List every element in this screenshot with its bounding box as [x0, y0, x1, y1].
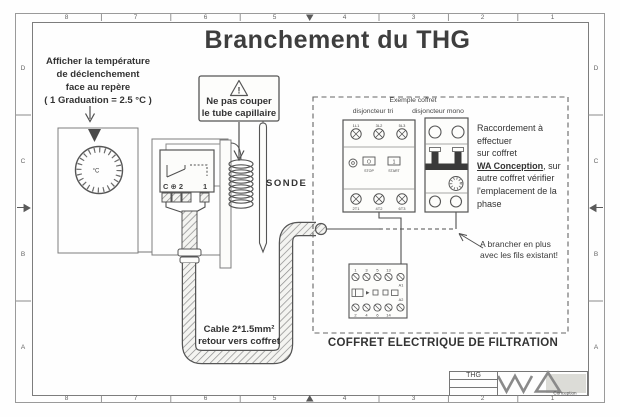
sonde-label: SONDE — [266, 178, 307, 189]
raccord-line: sur coffret — [477, 147, 573, 160]
raccord-line: autre coffret vérifier — [477, 172, 573, 185]
zone-col-bottom: 5 — [240, 394, 309, 403]
brancher-line: A brancher en plus — [480, 239, 588, 250]
zone-col-top: 1 — [518, 13, 587, 22]
zone-row-right: B — [588, 208, 604, 301]
raccord-line: l'emplacement de la — [477, 185, 573, 198]
zone-row-left: A — [15, 301, 31, 394]
brand-name: WA Conception — [477, 161, 543, 171]
zone-col-bottom: 4 — [310, 394, 379, 403]
cable-note: Cable 2*1.5mm² retour vers coffret — [193, 324, 285, 348]
zone-col-top: 2 — [448, 13, 517, 22]
zone-col-top: 8 — [32, 13, 101, 22]
cable-note-line: retour vers coffret — [193, 336, 285, 348]
title-block-table: THG — [450, 372, 498, 395]
warning-line: Ne pas couper — [200, 96, 278, 108]
zone-col-top: 3 — [379, 13, 448, 22]
zone-col-top: 6 — [171, 13, 240, 22]
page-title: Branchement du THG — [150, 26, 525, 55]
zone-col-top: 7 — [101, 13, 170, 22]
capillary-warning-note: Ne pas couper le tube capillaire — [200, 96, 278, 119]
zone-col-bottom: 8 — [32, 394, 101, 403]
drawing-code: THG — [450, 372, 497, 380]
raccord-line: effectuer — [477, 135, 573, 148]
zone-row-right: A — [588, 301, 604, 394]
title-block: THG — [449, 371, 588, 396]
zone-col-bottom: 3 — [379, 394, 448, 403]
raccord-line: WA Conception, sur — [477, 160, 573, 173]
zone-row-left: B — [15, 208, 31, 301]
breaker-tri-label: disjoncteur tri — [341, 108, 405, 115]
cable-note-line: Cable 2*1.5mm² — [193, 324, 285, 336]
title-block-empty-row — [450, 388, 497, 395]
brancher-annotation: A brancher en plus avec les fils existan… — [480, 239, 588, 261]
warning-line: le tube capillaire — [200, 108, 278, 120]
note-line: de déclenchement — [24, 68, 172, 81]
raccord-line: Raccordement à — [477, 122, 573, 135]
raccord-line-rest: , sur — [543, 161, 561, 171]
zone-col-bottom: 6 — [171, 394, 240, 403]
raccordement-note: Raccordement à effectuer sur coffret WA … — [477, 122, 573, 210]
raccord-line: phase — [477, 198, 573, 211]
note-line: face au repère — [24, 81, 172, 94]
zone-row-left: C — [15, 115, 31, 208]
zone-col-top: 5 — [240, 13, 309, 22]
brancher-line: avec les fils existant! — [480, 250, 588, 261]
zone-col-bottom: 7 — [101, 394, 170, 403]
breaker-mono-label: disjoncteur mono — [405, 108, 471, 115]
zone-row-right: C — [588, 115, 604, 208]
note-line: ( 1 Graduation = 2.5 °C ) — [24, 94, 172, 107]
title-block-logo-cell — [498, 372, 587, 395]
display-instruction-note: Afficher la température de déclenchement… — [24, 55, 172, 107]
zone-row-right: D — [588, 22, 604, 115]
zone-col-top: 4 — [310, 13, 379, 22]
drawing-sheet: 8 7 6 5 4 3 2 1 8 7 6 5 4 3 2 1 D C B A … — [0, 0, 620, 417]
title-block-empty-row — [450, 380, 497, 388]
coffret-caption: COFFRET ELECTRIQUE DE FILTRATION — [323, 337, 563, 349]
note-line: Afficher la température — [24, 55, 172, 68]
panel-example-header: Exemple coffret — [348, 97, 478, 104]
